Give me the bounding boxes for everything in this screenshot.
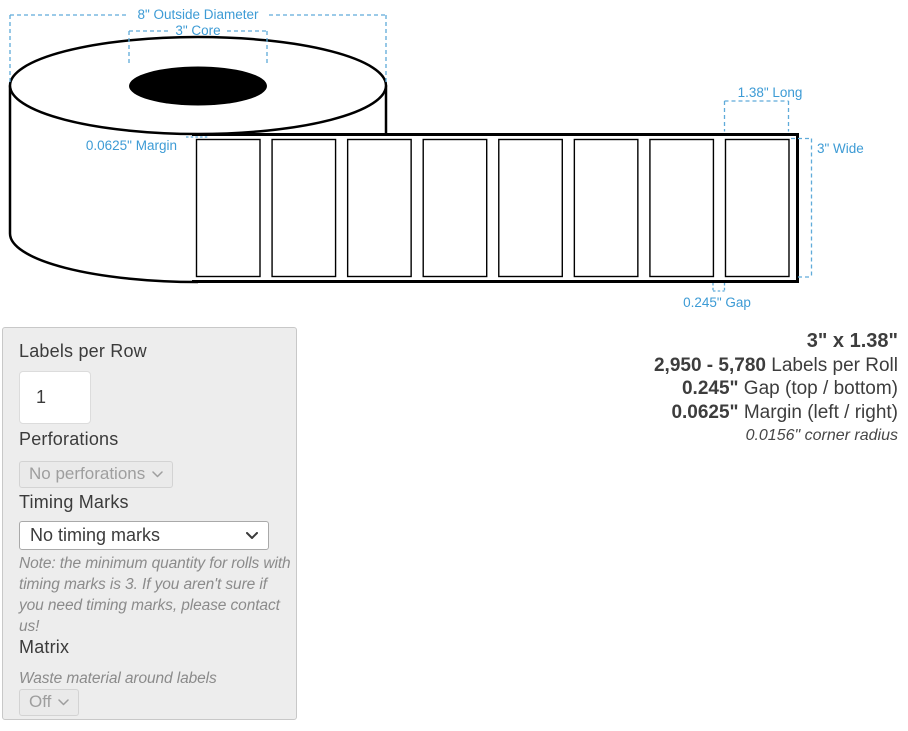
gap-line: 0.245" Gap (top / bottom): [654, 377, 898, 401]
matrix-description: Waste material around labels: [19, 668, 293, 689]
matrix-select[interactable]: Off: [19, 689, 79, 716]
chevron-down-icon: [246, 532, 258, 540]
margin-label: Margin (left / right): [739, 402, 898, 423]
gap-dash-bracket: [713, 283, 725, 291]
margin-line: 0.0625" Margin (left / right): [654, 401, 898, 425]
options-panel: Labels per Row Perforations No perforati…: [2, 327, 297, 720]
long-dash-bracket: [725, 101, 789, 132]
perforations-select-value: No perforations: [29, 464, 145, 484]
label-roll-diagram: 8" Outside Diameter 3" Core 0.0625" Marg…: [0, 0, 908, 330]
gap-value: 0.245": [682, 378, 739, 399]
matrix-heading: Matrix: [19, 637, 290, 657]
core-annotation: 3" Core: [175, 23, 220, 38]
chevron-down-icon: [152, 471, 163, 478]
gap-label: Gap (top / bottom): [739, 378, 898, 399]
labels-per-roll-label: Labels per Roll: [766, 355, 898, 376]
label-rect: [499, 140, 563, 277]
label-rect: [650, 140, 714, 277]
label-rect: [574, 140, 638, 277]
labels-per-row-input[interactable]: [19, 371, 91, 424]
chevron-down-icon: [58, 699, 69, 706]
wide-annotation: 3" Wide: [817, 141, 864, 156]
timing-marks-note: Note: the minimum quantity for rolls wit…: [19, 553, 293, 637]
timing-marks-select[interactable]: No timing marks: [19, 521, 269, 550]
label-rect: [272, 140, 336, 277]
label-configurator-page: 8" Outside Diameter 3" Core 0.0625" Marg…: [0, 0, 908, 731]
matrix-select-value: Off: [29, 692, 51, 712]
perforations-select[interactable]: No perforations: [19, 461, 173, 488]
labels-per-roll-line: 2,950 - 5,780 Labels per Roll: [654, 354, 898, 378]
labels-per-row-heading: Labels per Row: [19, 341, 290, 361]
roll-core: [129, 67, 267, 106]
gap-annotation: 0.245" Gap: [683, 295, 751, 310]
label-rect: [423, 140, 487, 277]
margin-annotation: 0.0625" Margin: [86, 138, 177, 153]
spec-summary: 3" x 1.38" 2,950 - 5,780 Labels per Roll…: [654, 330, 898, 448]
margin-value: 0.0625": [671, 402, 738, 423]
label-rect: [725, 140, 789, 277]
corner-radius: 0.0156" corner radius: [654, 424, 898, 448]
timing-marks-select-value: No timing marks: [30, 525, 160, 546]
label-rect: [197, 140, 261, 277]
label-size: 3" x 1.38": [654, 330, 898, 354]
timing-marks-heading: Timing Marks: [19, 492, 290, 512]
outside-diameter-annotation: 8" Outside Diameter: [137, 7, 259, 22]
label-rect: [348, 140, 412, 277]
long-annotation: 1.38" Long: [738, 85, 803, 100]
perforations-heading: Perforations: [19, 429, 290, 449]
labels-per-roll-value: 2,950 - 5,780: [654, 355, 766, 376]
